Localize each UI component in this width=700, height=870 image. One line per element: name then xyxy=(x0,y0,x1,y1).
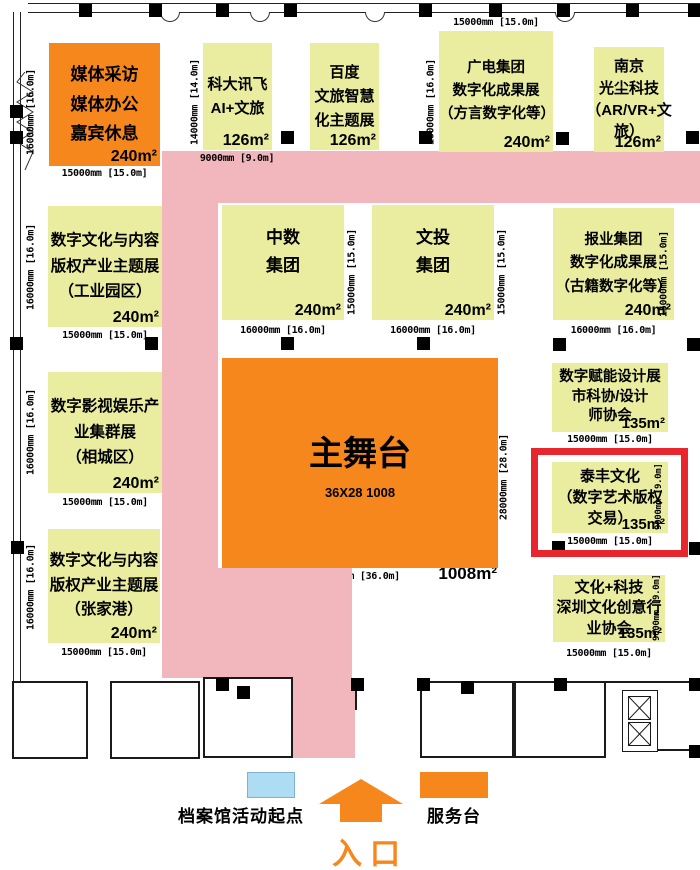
booth-name: 南京光尘科技（AR/VR+文旅） xyxy=(586,56,671,143)
booth-name: 科大讯飞AI+文旅 xyxy=(207,73,267,121)
stage-spec: 36X28 1008 xyxy=(309,485,411,500)
dim-label: 15000mm [15.0m] xyxy=(657,228,671,320)
dim-label: 15000mm [15.0m] xyxy=(345,222,359,322)
booth-area: 240m² xyxy=(111,148,157,166)
walkway-below-stage xyxy=(162,568,352,678)
booth-name: 文投集团 xyxy=(416,224,450,278)
wall-top xyxy=(28,3,700,13)
dim-label: 16000mm [16.0m] xyxy=(24,215,38,320)
booth-wenhua-keji: 文化+科技深圳文化创意行业协会 135m² xyxy=(553,575,665,642)
pillar xyxy=(11,541,24,554)
pillar xyxy=(417,678,430,691)
pillar xyxy=(281,337,294,350)
booth-xiangcheng: 数字影视娱乐产业集群展（相城区） 240m² xyxy=(48,372,162,493)
dim-label: 9000mm [9.0m] xyxy=(650,577,664,639)
dim-label: 15000mm [15.0m] xyxy=(495,222,509,322)
room-bottom-2 xyxy=(110,681,200,759)
booth-name: 中数集团 xyxy=(266,224,300,278)
dim-label: 16000mm [16.0m] xyxy=(24,380,38,485)
booth-area: 126m² xyxy=(615,134,661,152)
dim-label: 28000mm [28.0m] xyxy=(497,420,511,535)
booth-area: 240m² xyxy=(113,309,159,327)
stage-label: 主舞台 36X28 1008 xyxy=(309,426,411,500)
pillar xyxy=(419,131,432,144)
pillar xyxy=(461,681,474,694)
pillar xyxy=(351,678,364,691)
dim-label: 16000mm [16.0m] xyxy=(24,537,38,637)
door-arc xyxy=(160,12,180,22)
booth-media: 媒体采访媒体办公嘉宾休息 240m² xyxy=(49,43,160,166)
pillar xyxy=(79,4,92,17)
booth-name: 数字影视娱乐产业集群展（相城区） xyxy=(51,394,160,471)
booth-iflytek: 科大讯飞AI+文旅 126m² xyxy=(203,43,272,150)
booth-name: 报业集团数字化成果展（古籍数字化等） xyxy=(556,229,672,299)
booth-industry-park: 数字文化与内容版权产业主题展（工业园区） 240m² xyxy=(48,206,162,327)
booth-area: 240m² xyxy=(111,625,157,643)
door-arc xyxy=(250,12,270,22)
booth-baoye: 报业集团数字化成果展（古籍数字化等） 240m² xyxy=(553,208,674,320)
dim-label: 14000mm [14.0m] xyxy=(188,52,202,152)
dim-label: 16000mm [16.0m] xyxy=(222,325,344,336)
door-arc xyxy=(365,12,385,22)
stage-name: 主舞台 xyxy=(309,426,411,475)
pillar xyxy=(216,678,229,691)
booth-area: 135m² xyxy=(622,415,665,432)
dim-label: 16000mm [16.0m] xyxy=(24,57,38,167)
booth-baidu: 百度文旅智慧化主题展 126m² xyxy=(310,43,379,150)
pillar xyxy=(10,105,23,118)
elevator-icon xyxy=(628,722,651,746)
dim-label: 15000mm [15.0m] xyxy=(552,434,668,445)
legend-archive-label: 档案馆活动起点 xyxy=(178,802,304,827)
dim-label: 16000mm [16.0m] xyxy=(553,325,674,336)
pillar xyxy=(553,338,566,351)
walkway-entrance-column xyxy=(285,678,355,758)
dim-label: 15000mm [15.0m] xyxy=(439,17,553,28)
pillar xyxy=(689,678,700,691)
dim-label: 15000mm [15.0m] xyxy=(553,648,665,659)
pillar xyxy=(689,745,700,758)
legend-archive-swatch xyxy=(247,772,295,798)
booth-sheji: 数字赋能设计展市科协/设计师协会 135m² xyxy=(552,363,668,432)
exhibition-floor-plan: 媒体采访媒体办公嘉宾休息 240m² 16000mm [16.0m] 15000… xyxy=(0,0,700,870)
dim-label: 15000mm [15.0m] xyxy=(48,647,160,658)
booth-name: 数字文化与内容版权产业主题展（张家港） xyxy=(50,549,159,623)
booth-wentou: 文投集团 240m² xyxy=(372,205,494,320)
booth-zhangjiagang: 数字文化与内容版权产业主题展（张家港） 240m² xyxy=(48,529,160,643)
booth-zhongshu: 中数集团 240m² xyxy=(222,205,344,320)
entrance-arrow-icon xyxy=(318,779,404,828)
pillar xyxy=(626,4,639,17)
entrance-label: 入口 xyxy=(332,829,408,870)
pillar xyxy=(284,4,297,17)
booth-area: 240m² xyxy=(113,475,159,493)
pillar xyxy=(556,132,569,145)
booth-name: 数字文化与内容版权产业主题展（工业园区） xyxy=(51,228,160,305)
dim-label: 16000mm [16.0m] xyxy=(372,325,494,336)
pillar xyxy=(557,4,570,17)
booth-area: 240m² xyxy=(445,302,491,320)
elevator-icon xyxy=(628,696,651,720)
dim-label: 15000mm [15.0m] xyxy=(49,168,160,179)
pillar xyxy=(149,4,162,17)
wall-segment xyxy=(606,681,700,683)
booth-area: 126m² xyxy=(223,132,269,150)
pillar xyxy=(688,4,700,17)
booth-name: 媒体采访媒体办公嘉宾休息 xyxy=(71,60,139,149)
booth-name: 百度文旅智慧化主题展 xyxy=(314,61,374,133)
walkway-left-aisle xyxy=(162,203,218,568)
pillar xyxy=(145,337,158,350)
room-bottom-5 xyxy=(514,681,606,758)
pillar xyxy=(687,338,700,351)
booth-name: 广电集团数字化成果展（方言数字化等） xyxy=(439,57,553,127)
highlight-box xyxy=(531,448,688,557)
pillar xyxy=(237,686,250,699)
booth-guangdian: 广电集团数字化成果展（方言数字化等） 240m² xyxy=(439,31,553,152)
legend-service-label: 服务台 xyxy=(427,802,481,827)
pillar xyxy=(216,4,229,17)
dim-label: 15000mm [15.0m] xyxy=(48,497,162,508)
pillar xyxy=(686,131,699,144)
legend-service-swatch xyxy=(420,772,488,798)
pillar xyxy=(419,4,432,17)
room-bottom-1 xyxy=(12,681,88,759)
pillar xyxy=(417,337,430,350)
pillar xyxy=(689,542,700,555)
main-stage: 主舞台 36X28 1008 xyxy=(222,358,498,568)
pillar xyxy=(10,131,23,144)
pillar xyxy=(281,131,294,144)
pillar xyxy=(10,337,23,350)
pillar xyxy=(554,678,567,691)
pillar xyxy=(489,4,502,17)
dim-label: 9000mm [9.0m] xyxy=(197,153,277,164)
booth-area: 240m² xyxy=(295,302,341,320)
booth-area: 126m² xyxy=(330,132,376,150)
booth-area: 240m² xyxy=(504,134,550,152)
booth-nanjing: 南京光尘科技（AR/VR+文旅） 126m² xyxy=(594,47,664,152)
